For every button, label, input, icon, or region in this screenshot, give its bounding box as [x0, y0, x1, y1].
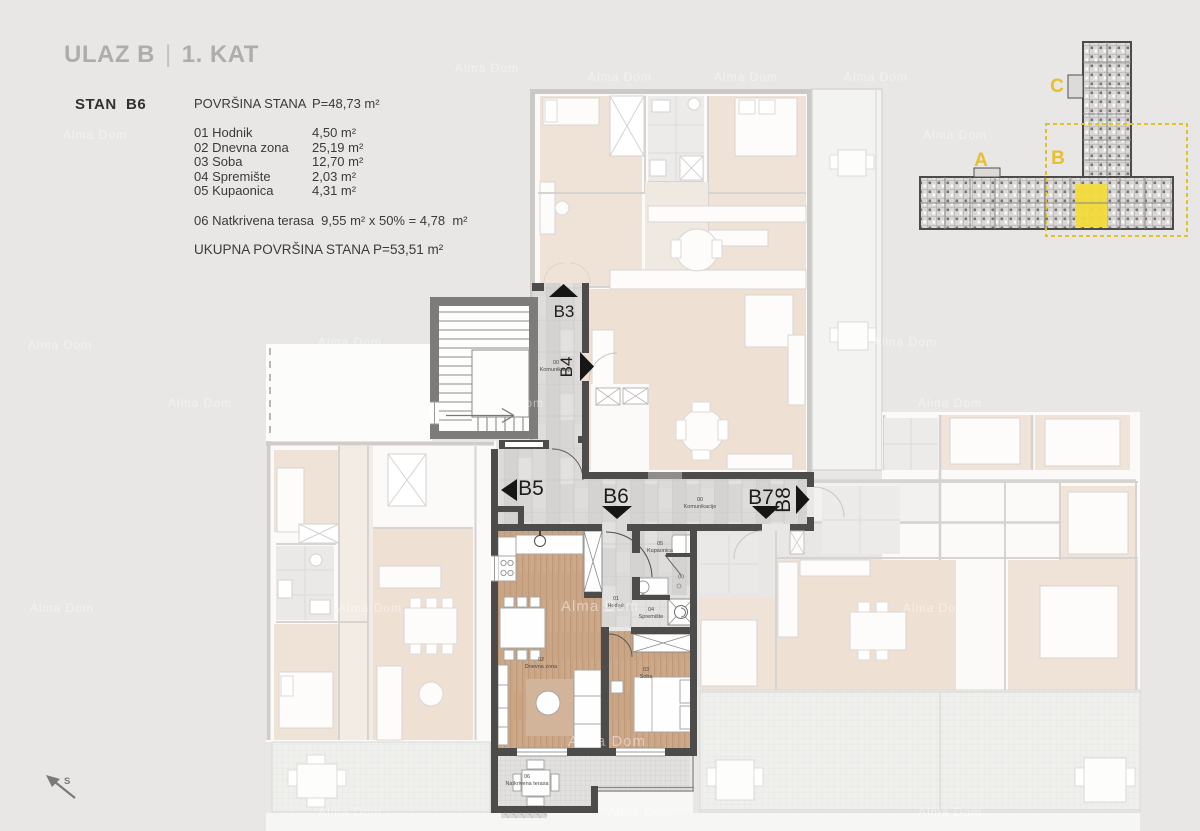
svg-text:Dnevna zona: Dnevna zona [525, 664, 558, 670]
svg-text:Alma Dom: Alma Dom [714, 70, 778, 84]
svg-text:Alma Dom: Alma Dom [455, 61, 519, 75]
svg-text:Natkrivena terasa: Natkrivena terasa [505, 781, 549, 787]
svg-text:(x): (x) [678, 574, 684, 580]
svg-text:B8: B8 [772, 487, 795, 513]
svg-text:B: B [1051, 148, 1065, 169]
svg-text:A: A [974, 150, 988, 171]
svg-text:Alma Dom: Alma Dom [873, 335, 937, 349]
svg-text:04: 04 [648, 607, 654, 613]
svg-text:Alma Dom: Alma Dom [568, 733, 646, 750]
svg-text:00: 00 [553, 360, 559, 366]
svg-text:Spremište: Spremište [639, 614, 664, 620]
svg-text:Alma Dom: Alma Dom [28, 338, 92, 352]
svg-text:B5: B5 [518, 477, 544, 500]
svg-text:Alma Dom: Alma Dom [318, 335, 382, 349]
svg-text:S: S [64, 776, 70, 787]
svg-text:C: C [1050, 76, 1064, 97]
svg-text:Alma Dom: Alma Dom [588, 70, 652, 84]
svg-text:Alma Dom: Alma Dom [608, 805, 672, 819]
svg-text:03: 03 [643, 667, 649, 673]
svg-text:Alma Dom: Alma Dom [318, 805, 382, 819]
svg-text:Alma Dom: Alma Dom [63, 128, 127, 142]
svg-text:Kupaonica: Kupaonica [647, 548, 674, 554]
svg-text:00: 00 [697, 497, 703, 503]
svg-text:Alma Dom: Alma Dom [168, 396, 232, 410]
svg-text:Alma Dom: Alma Dom [903, 601, 967, 615]
svg-text:B7: B7 [748, 486, 774, 509]
svg-text:Soba: Soba [640, 674, 654, 680]
svg-text:Alma Dom: Alma Dom [30, 601, 94, 615]
svg-text:Alma Dom: Alma Dom [561, 598, 639, 615]
svg-text:Alma Dom: Alma Dom [338, 601, 402, 615]
svg-text:Komunikacije: Komunikacije [540, 367, 573, 373]
svg-text:Komunikacije: Komunikacije [684, 504, 717, 510]
svg-text:Alma Dom: Alma Dom [918, 396, 982, 410]
svg-text:Alma Dom: Alma Dom [918, 805, 982, 819]
svg-text:06: 06 [524, 774, 530, 780]
svg-text:B3: B3 [554, 302, 575, 321]
svg-text:Alma Dom: Alma Dom [844, 70, 908, 84]
svg-text:05: 05 [657, 541, 663, 547]
svg-text:02: 02 [538, 657, 544, 663]
svg-text:Alma Dom: Alma Dom [923, 128, 987, 142]
svg-text:B6: B6 [603, 485, 629, 508]
svg-text:Alma Dom: Alma Dom [480, 396, 544, 410]
